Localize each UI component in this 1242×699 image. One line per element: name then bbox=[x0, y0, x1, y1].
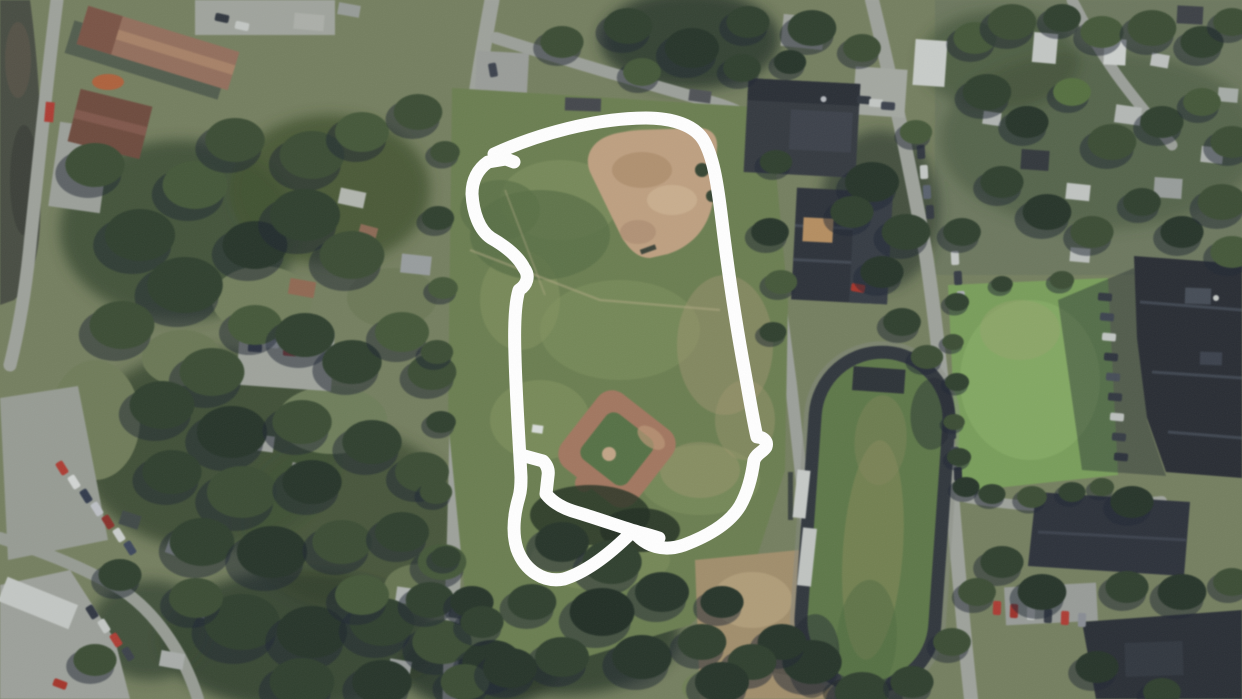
satellite-map-view[interactable] bbox=[0, 0, 1242, 699]
aerial-photo bbox=[0, 0, 1242, 699]
grain-overlay bbox=[0, 0, 1242, 699]
